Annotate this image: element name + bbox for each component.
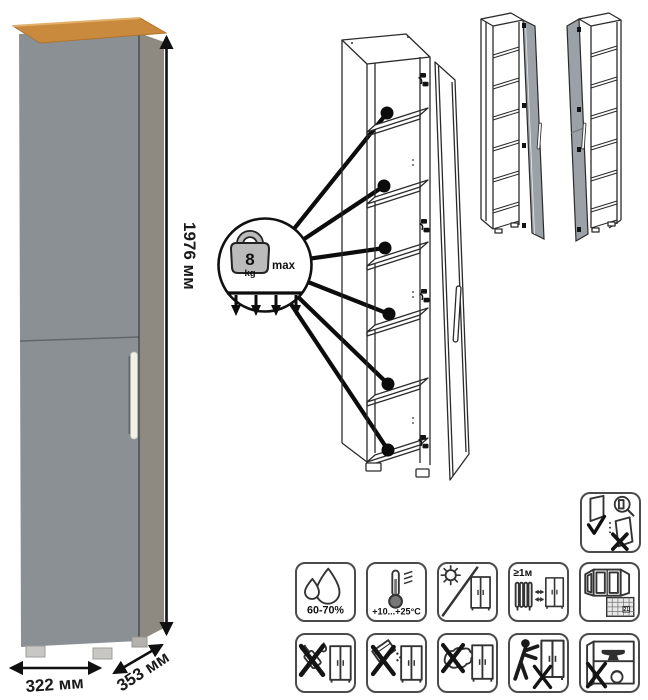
width-label: 322 мм — [25, 673, 84, 696]
cabinet-foot — [132, 637, 147, 647]
icon-tile-ventilate: 21 — [579, 562, 640, 622]
calendar-day-label: 21 — [623, 607, 629, 613]
temperature-label: +10...+25°C — [372, 606, 421, 616]
open-window — [585, 570, 629, 596]
no-heavy-objects-icon — [581, 635, 638, 691]
max-label: max — [272, 260, 296, 272]
icon-tile-humidity: 60-70% — [295, 562, 356, 622]
calendar-icon: 21 — [607, 598, 634, 617]
no-solvents-icon — [297, 635, 354, 691]
height-label: 1976 мм — [180, 222, 199, 290]
no-direct-sunlight-icon — [439, 564, 496, 620]
distance-label: ≥1м — [513, 568, 532, 579]
height-dimension: 1976 мм — [167, 37, 200, 634]
door-mounting-variants — [470, 5, 648, 255]
no-wet-cloth-icon — [439, 635, 496, 691]
humidity-drops-icon: 60-70% — [297, 564, 354, 620]
open-door — [435, 62, 469, 480]
icon-tile-no-abrasives — [366, 633, 427, 693]
no-abrasive-powder-icon — [368, 635, 425, 691]
cabinet-foot — [366, 463, 381, 471]
icon-tile-temperature: +10...+25°C — [366, 562, 427, 622]
icon-tile-no-wet-cloth — [437, 633, 498, 693]
icon-tile-no-dragging — [508, 633, 569, 693]
person-icon — [515, 639, 537, 679]
ventilate-room-icon: 21 — [581, 564, 638, 620]
product-sheet: 1976 мм 322 мм 353 мм — [0, 0, 648, 700]
cabinet-foot — [416, 469, 429, 477]
weight-unit-label: kg — [244, 268, 255, 279]
product-photo: 1976 мм 322 мм 353 мм — [0, 0, 200, 700]
variant-door-left — [567, 13, 621, 241]
cabinet-side-panel — [139, 33, 164, 641]
icon-tile-no-heavy-objects — [579, 633, 640, 693]
humidity-label: 60-70% — [307, 604, 344, 616]
icon-tile-door-adjustment — [580, 492, 641, 553]
kettlebell-icon — [611, 671, 622, 682]
cabinet-foot — [26, 646, 45, 657]
shelf-load-callout: 8 kg max — [219, 219, 312, 317]
icon-tile-no-solvents — [295, 633, 356, 693]
cabinet-foot — [93, 648, 112, 659]
radiator-icon — [516, 583, 532, 610]
icon-tile-no-sunlight — [437, 562, 498, 622]
shelves — [367, 108, 428, 466]
heat-distance-icon: ≥1м — [510, 564, 567, 620]
door-handle — [131, 352, 138, 439]
no-dragging-icon — [510, 635, 567, 691]
carcass-top — [342, 34, 430, 64]
depth-dimension: 353 мм — [113, 645, 172, 695]
icon-tile-heat-distance: ≥1м — [508, 562, 569, 622]
weight-value-label: 8 — [245, 250, 254, 269]
variant-door-right — [481, 13, 544, 239]
width-dimension: 322 мм — [11, 668, 100, 696]
door-adjustment-icon — [582, 494, 639, 551]
shelf-pointer-dots — [378, 107, 396, 457]
cabinet-photo — [13, 18, 166, 659]
exploded-cabinet-diagram: 8 kg max — [200, 10, 480, 520]
thermometer-icon: +10...+25°C — [368, 564, 425, 620]
